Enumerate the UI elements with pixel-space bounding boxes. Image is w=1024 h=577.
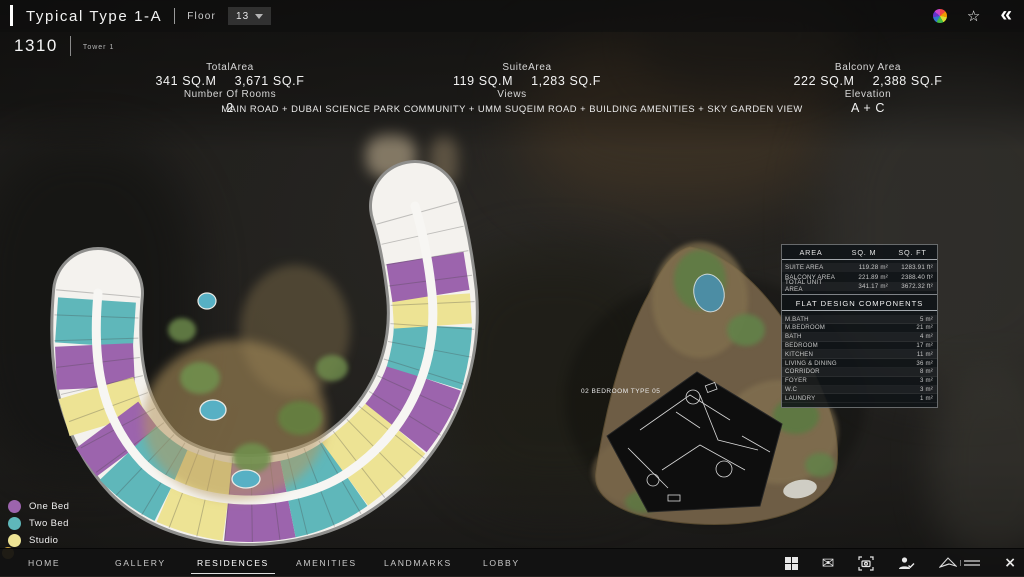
table-row: SUITE AREA 119.28 m² 1283.91 ft² bbox=[782, 263, 937, 272]
stat-total-area: TotalArea 341 SQ.M3,671 SQ.F bbox=[80, 62, 380, 88]
legend-item-one-bed: One Bed bbox=[8, 499, 69, 514]
detail-plan-label: 02 BEDROOM TYPE 05 bbox=[581, 388, 660, 395]
nav-item-lobby[interactable]: LOBBY bbox=[483, 549, 520, 577]
stat-value: A + C bbox=[718, 101, 1018, 115]
top-header-bar: Typical Type 1-A Floor 13 ☆ « bbox=[0, 0, 1024, 32]
stat-balcony-area: Balcony Area 222 SQ.M2,388 SQ.F bbox=[718, 62, 1018, 88]
stat-suite-area: SuiteArea 119 SQ.M1,283 SQ.F bbox=[377, 62, 677, 88]
area-info-panel: AREA SQ. M SQ. FT SUITE AREA 119.28 m² 1… bbox=[781, 244, 938, 408]
main-floor-plan[interactable] bbox=[94, 206, 433, 503]
stat-label: SuiteArea bbox=[377, 62, 677, 73]
nav-item-home[interactable]: HOME bbox=[28, 549, 60, 577]
area-table-header: AREA SQ. M SQ. FT bbox=[782, 245, 937, 260]
component-row: LAUNDRY1 m² bbox=[782, 394, 937, 403]
stat-sqm: 222 SQ.M bbox=[793, 74, 854, 88]
legend-item-studio: Studio bbox=[8, 533, 69, 548]
studio-swatch bbox=[8, 534, 21, 547]
stat-label: Elevation bbox=[718, 89, 1018, 100]
stat-sqf: 2,388 SQ.F bbox=[873, 74, 943, 88]
grid-menu-icon[interactable] bbox=[785, 557, 798, 570]
component-row: BEDROOM17 m² bbox=[782, 342, 937, 351]
legend-label: Studio bbox=[29, 535, 58, 546]
stat-label: TotalArea bbox=[80, 62, 380, 73]
table-row: TOTAL UNIT AREA 341.17 m² 3672.32 ft² bbox=[782, 282, 937, 291]
nav-item-residences[interactable]: RESIDENCES bbox=[197, 549, 269, 577]
col-area: AREA bbox=[782, 248, 840, 257]
unit-number: 1310 bbox=[14, 36, 58, 56]
col-sqft: SQ. FT bbox=[888, 248, 937, 257]
stat-sqm: 119 SQ.M bbox=[453, 74, 513, 88]
col-sqm: SQ. M bbox=[840, 248, 888, 257]
component-row: M.BATH5 m² bbox=[782, 315, 937, 324]
title-accent-bar bbox=[10, 5, 13, 26]
legend-label: One Bed bbox=[29, 501, 69, 512]
component-row: W.C3 m² bbox=[782, 386, 937, 395]
screenshot-camera-icon[interactable] bbox=[858, 556, 874, 571]
chevron-down-icon bbox=[255, 14, 263, 19]
stat-label: Balcony Area bbox=[718, 62, 1018, 73]
components-title: FLAT DESIGN COMPONENTS bbox=[782, 297, 937, 311]
close-icon[interactable]: × bbox=[1004, 556, 1016, 570]
legend-item-two-bed: Two Bed bbox=[8, 516, 69, 531]
nav-item-landmarks[interactable]: LANDMARKS bbox=[384, 549, 452, 577]
collapse-chevrons-icon[interactable]: « bbox=[1000, 8, 1012, 22]
header-divider bbox=[174, 8, 175, 24]
legend-label: Two Bed bbox=[29, 518, 69, 529]
floor-label: Floor bbox=[187, 11, 216, 22]
unit-divider bbox=[70, 36, 71, 56]
brand-logo bbox=[939, 556, 980, 570]
stat-elevation: Elevation A + C bbox=[718, 89, 1018, 115]
unit-type-legend: One Bed Two Bed Studio bbox=[8, 499, 69, 550]
floor-dropdown[interactable]: 13 bbox=[228, 7, 271, 25]
unit-header: 1310 Tower 1 bbox=[14, 36, 114, 56]
component-row: M.BEDROOM21 m² bbox=[782, 324, 937, 333]
component-row: FOYER3 m² bbox=[782, 377, 937, 386]
two-bed-swatch bbox=[8, 517, 21, 530]
tower-label: Tower 1 bbox=[83, 44, 115, 51]
stat-sqf: 3,671 SQ.F bbox=[235, 74, 305, 88]
bottom-nav-bar: HOME GALLERY RESIDENCES AMENITIES LANDMA… bbox=[0, 548, 1024, 576]
stat-sqm: 341 SQ.M bbox=[155, 74, 216, 88]
component-row: KITCHEN11 m² bbox=[782, 350, 937, 359]
brand-logo-text bbox=[960, 560, 980, 566]
brand-logo-icon bbox=[939, 556, 957, 570]
color-wheel-icon[interactable] bbox=[933, 9, 947, 23]
mail-icon[interactable]: ✉ bbox=[822, 556, 835, 570]
floor-value: 13 bbox=[236, 11, 249, 22]
nav-item-amenities[interactable]: AMENITIES bbox=[296, 549, 357, 577]
nav-item-gallery[interactable]: GALLERY bbox=[115, 549, 166, 577]
agent-user-check-icon[interactable] bbox=[898, 556, 915, 571]
one-bed-swatch bbox=[8, 500, 21, 513]
component-row: BATH4 m² bbox=[782, 333, 937, 342]
favorite-star-icon[interactable]: ☆ bbox=[967, 9, 980, 23]
stat-sqf: 1,283 SQ.F bbox=[531, 74, 601, 88]
page-title: Typical Type 1-A bbox=[26, 8, 162, 25]
component-row: LIVING & DINING36 m² bbox=[782, 359, 937, 368]
component-row: CORRIDOR8 m² bbox=[782, 368, 937, 377]
